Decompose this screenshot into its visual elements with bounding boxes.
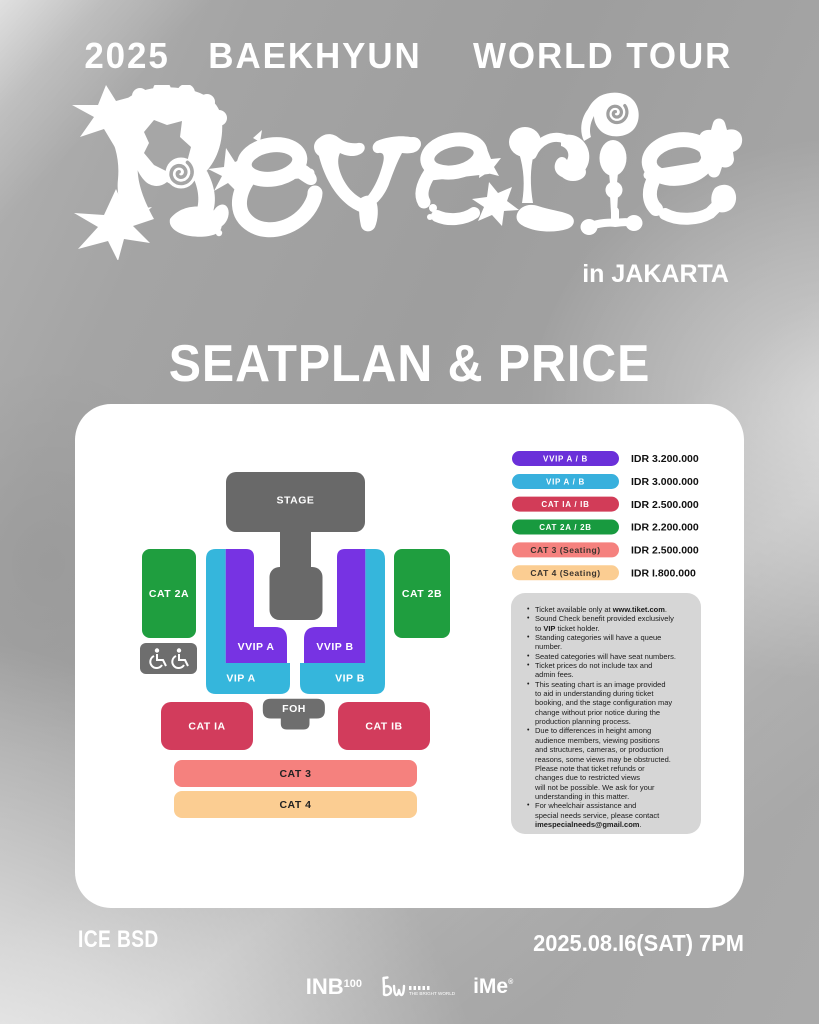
svg-text:CAT 4: CAT 4: [279, 799, 311, 811]
svg-text:CAT 2B: CAT 2B: [402, 588, 442, 600]
svg-text:IDR 2.500.000: IDR 2.500.000: [631, 499, 699, 511]
svg-text:CAT 3: CAT 3: [279, 768, 311, 780]
svg-text:CAT 2A: CAT 2A: [149, 588, 189, 600]
svg-text:CAT IA: CAT IA: [188, 721, 225, 733]
svg-text:IDR 2.200.000: IDR 2.200.000: [631, 522, 699, 534]
svg-text:VIP A / B: VIP A / B: [546, 478, 585, 487]
svg-text:FOH: FOH: [282, 703, 306, 715]
svg-text:STAGE: STAGE: [277, 495, 315, 507]
svg-text:IDR 3.200.000: IDR 3.200.000: [631, 453, 699, 465]
svg-text:CAT 2A / 2B: CAT 2A / 2B: [539, 523, 592, 532]
svg-text:VVIP B: VVIP B: [316, 641, 353, 653]
svg-text:VVIP A: VVIP A: [238, 641, 275, 653]
svg-text:IDR 2.500.000: IDR 2.500.000: [631, 545, 699, 557]
svg-text:VVIP A / B: VVIP A / B: [543, 455, 588, 464]
svg-text:VIP A: VIP A: [226, 673, 255, 685]
svg-text:CAT IA / IB: CAT IA / IB: [541, 500, 589, 509]
svg-text:CAT IB: CAT IB: [365, 721, 402, 733]
svg-text:VIP B: VIP B: [335, 673, 365, 685]
svg-text:CAT 3 (Seating): CAT 3 (Seating): [530, 545, 600, 555]
svg-text:IDR I.800.000: IDR I.800.000: [631, 568, 696, 580]
svg-text:CAT 4 (Seating): CAT 4 (Seating): [530, 568, 600, 578]
svg-text:IDR 3.000.000: IDR 3.000.000: [631, 476, 699, 488]
